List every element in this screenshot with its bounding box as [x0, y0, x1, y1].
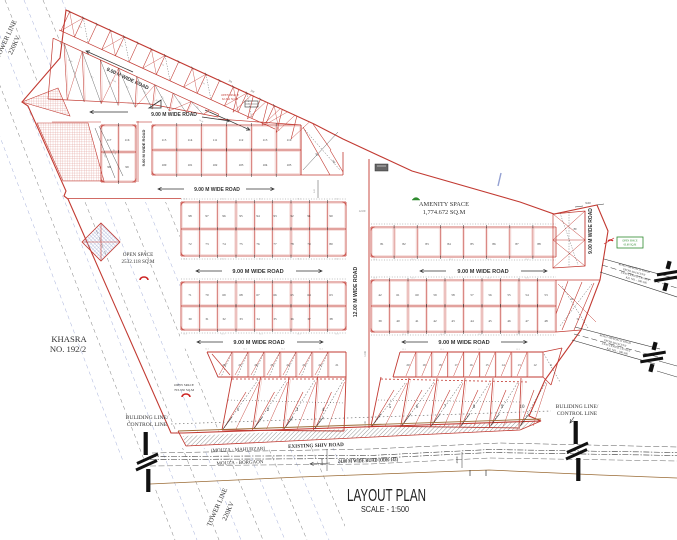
svg-text:117: 117 [107, 138, 112, 142]
svg-text:12.00: 12.00 [364, 350, 367, 357]
svg-text:47: 47 [525, 319, 529, 323]
svg-text:80: 80 [329, 242, 333, 246]
svg-text:12.1: 12.1 [205, 349, 208, 351]
svg-text:12.1: 12.1 [478, 334, 481, 336]
svg-text:12.1: 12.1 [487, 259, 490, 261]
svg-text:75: 75 [239, 242, 243, 246]
svg-text:OPEN SPACE: OPEN SPACE [174, 383, 194, 387]
svg-text:105: 105 [287, 163, 292, 167]
svg-text:30: 30 [188, 317, 192, 321]
svg-text:12.1: 12.1 [183, 259, 186, 261]
svg-text:111: 111 [213, 138, 218, 142]
svg-text:39: 39 [378, 319, 382, 323]
svg-text:76: 76 [256, 242, 260, 246]
svg-text:94: 94 [256, 214, 260, 218]
svg-text:113: 113 [263, 138, 268, 142]
svg-text:114: 114 [188, 138, 193, 142]
svg-text:32: 32 [222, 317, 226, 321]
svg-text:65: 65 [290, 293, 294, 297]
svg-text:9.00 M WIDE ROAD: 9.00 M WIDE ROAD [457, 269, 508, 275]
svg-text:96: 96 [222, 214, 226, 218]
svg-text:59: 59 [433, 293, 437, 297]
svg-text:63.68 SQ.M: 63.68 SQ.M [624, 244, 637, 247]
svg-text:83: 83 [425, 242, 429, 246]
svg-text:12.1: 12.1 [243, 349, 246, 351]
svg-text:38: 38 [329, 317, 333, 321]
svg-text:12.1: 12.1 [449, 278, 452, 280]
svg-text:26: 26 [254, 363, 258, 367]
svg-text:61: 61 [396, 293, 400, 297]
svg-text:12.1: 12.1 [259, 259, 262, 261]
svg-text:27: 27 [238, 363, 242, 367]
svg-text:72: 72 [188, 242, 192, 246]
svg-text:71: 71 [188, 293, 192, 297]
svg-text:SCALE - 1:500: SCALE - 1:500 [361, 505, 410, 514]
svg-text:95: 95 [239, 214, 243, 218]
svg-text:9.00 M WIDE ROAD: 9.00 M WIDE ROAD [232, 269, 283, 275]
svg-text:67: 67 [256, 293, 260, 297]
svg-text:12.1: 12.1 [297, 334, 300, 336]
svg-text:12.1: 12.1 [525, 278, 528, 280]
svg-text:78: 78 [290, 242, 294, 246]
svg-text:103: 103 [239, 163, 244, 167]
svg-text:57: 57 [470, 293, 474, 297]
svg-text:101: 101 [188, 163, 193, 167]
svg-text:12.1: 12.1 [487, 278, 490, 280]
svg-text:21: 21 [335, 363, 339, 367]
svg-text:CONTROL LINE: CONTROL LINE [127, 422, 168, 428]
svg-text:92: 92 [290, 214, 294, 218]
svg-text:64: 64 [307, 293, 311, 297]
svg-text:62.342 SQ.M: 62.342 SQ.M [222, 97, 239, 101]
svg-text:20: 20 [406, 363, 410, 367]
svg-text:13: 13 [517, 363, 521, 367]
svg-text:9.00 M WIDE ROAD: 9.00 M WIDE ROAD [588, 208, 594, 254]
svg-text:9.00 M WIDE ROAD: 9.00 M WIDE ROAD [194, 187, 240, 193]
svg-text:12.1: 12.1 [259, 199, 262, 201]
svg-text:84: 84 [447, 242, 451, 246]
svg-text:12.1: 12.1 [221, 334, 224, 336]
svg-text:703.350 SQ.M: 703.350 SQ.M [174, 388, 194, 392]
svg-text:12.1: 12.1 [297, 199, 300, 201]
svg-text:93: 93 [273, 214, 277, 218]
svg-text:12.00 M WIDE ROAD: 12.00 M WIDE ROAD [353, 267, 359, 318]
svg-text:12.1: 12.1 [411, 278, 414, 280]
svg-text:53: 53 [544, 293, 548, 297]
svg-text:74: 74 [222, 242, 226, 246]
svg-text:116: 116 [125, 138, 130, 142]
svg-text:48: 48 [544, 319, 548, 323]
svg-text:90: 90 [329, 214, 333, 218]
svg-text:25: 25 [270, 363, 274, 367]
svg-text:37: 37 [307, 317, 311, 321]
svg-text:12: 12 [533, 363, 537, 367]
svg-text:9.00 M WIDE ROAD: 9.00 M WIDE ROAD [233, 340, 284, 346]
svg-text:41: 41 [415, 319, 419, 323]
svg-text:86: 86 [492, 242, 496, 246]
svg-text:104: 104 [263, 163, 268, 167]
svg-text:100: 100 [162, 163, 167, 167]
svg-text:12.1: 12.1 [281, 349, 284, 351]
svg-text:46: 46 [507, 319, 511, 323]
svg-text:66: 66 [273, 293, 277, 297]
svg-text:16: 16 [469, 363, 473, 367]
svg-text:10: 10 [520, 405, 526, 410]
svg-text:17: 17 [454, 363, 458, 367]
svg-text:79: 79 [307, 242, 311, 246]
svg-text:68: 68 [239, 293, 243, 297]
svg-text:12.1: 12.1 [478, 349, 481, 351]
svg-text:OPEN SPACE: OPEN SPACE [622, 240, 638, 243]
svg-text:12.1: 12.1 [297, 259, 300, 261]
svg-text:82: 82 [402, 242, 406, 246]
svg-text:12.1: 12.1 [440, 349, 443, 351]
svg-text:42: 42 [378, 293, 382, 297]
svg-text:58: 58 [451, 293, 455, 297]
svg-text:69: 69 [222, 293, 226, 297]
svg-text:15: 15 [485, 363, 489, 367]
svg-text:28.00: 28.00 [455, 456, 459, 463]
svg-text:54: 54 [525, 293, 529, 297]
svg-text:110: 110 [287, 138, 292, 142]
svg-text:36: 36 [290, 317, 294, 321]
svg-text:24: 24 [286, 363, 290, 367]
svg-text:12.00: 12.00 [359, 209, 366, 213]
svg-text:18: 18 [438, 363, 442, 367]
svg-text:91: 91 [307, 214, 311, 218]
svg-text:77: 77 [273, 242, 277, 246]
svg-text:115: 115 [162, 138, 167, 142]
svg-text:98: 98 [188, 214, 192, 218]
svg-text:34: 34 [256, 317, 260, 321]
svg-text:BULIDING LINE/: BULIDING LINE/ [126, 415, 169, 421]
svg-text:102: 102 [213, 163, 218, 167]
svg-text:12.1: 12.1 [402, 349, 405, 351]
svg-text:112: 112 [239, 138, 244, 142]
svg-text:44: 44 [470, 319, 474, 323]
svg-text:OPEN SPACE: OPEN SPACE [123, 252, 154, 258]
svg-text:60: 60 [415, 293, 419, 297]
svg-text:2532.118 SQ.M: 2532.118 SQ.M [121, 259, 154, 265]
svg-text:9.00: 9.00 [585, 201, 591, 205]
svg-text:BULIDING LINE/: BULIDING LINE/ [556, 404, 599, 410]
svg-text:AMENITY SPACE: AMENITY SPACE [419, 201, 469, 208]
svg-text:22: 22 [318, 363, 322, 367]
svg-text:CONTROL LINE: CONTROL LINE [557, 411, 598, 417]
svg-text:85: 85 [470, 242, 474, 246]
svg-text:87: 87 [515, 242, 519, 246]
svg-text:55: 55 [507, 293, 511, 297]
svg-text:33: 33 [239, 317, 243, 321]
svg-text:43: 43 [451, 319, 455, 323]
svg-text:35: 35 [273, 317, 277, 321]
svg-text:12.00: 12.00 [364, 420, 367, 427]
svg-text:73: 73 [205, 242, 209, 246]
svg-text:63: 63 [329, 293, 333, 297]
svg-text:12.1: 12.1 [319, 349, 322, 351]
svg-text:12.1: 12.1 [335, 199, 338, 201]
svg-text:19: 19 [422, 363, 426, 367]
svg-text:88: 88 [537, 242, 541, 246]
svg-text:9.00 M WIDE ROAD: 9.00 M WIDE ROAD [141, 130, 146, 167]
svg-text:9.00 M WIDE ROAD: 9.00 M WIDE ROAD [438, 340, 489, 346]
svg-text:LAYOUT PLAN: LAYOUT PLAN [347, 485, 426, 505]
svg-text:12.1: 12.1 [516, 349, 519, 351]
svg-text:40: 40 [396, 319, 400, 323]
svg-text:12.1: 12.1 [183, 199, 186, 201]
svg-text:1,774.672 SQ.M: 1,774.672 SQ.M [423, 209, 466, 216]
svg-text:12.1: 12.1 [221, 199, 224, 201]
svg-text:42: 42 [433, 319, 437, 323]
svg-text:12.1: 12.1 [183, 334, 186, 336]
svg-text:KHASRA: KHASRA [51, 334, 87, 344]
svg-text:14: 14 [501, 363, 505, 367]
svg-text:56: 56 [488, 293, 492, 297]
svg-text:NO. 192/2: NO. 192/2 [50, 344, 86, 354]
svg-text:99: 99 [125, 165, 129, 169]
svg-text:12.1: 12.1 [221, 259, 224, 261]
svg-text:23: 23 [302, 363, 306, 367]
svg-text:12.1: 12.1 [335, 259, 338, 261]
svg-text:45: 45 [488, 319, 492, 323]
svg-text:70: 70 [205, 293, 209, 297]
svg-text:97: 97 [205, 214, 209, 218]
svg-text:12.1: 12.1 [335, 334, 338, 336]
svg-text:9.00 M WIDE ROAD: 9.00 M WIDE ROAD [151, 112, 197, 118]
svg-text:81: 81 [380, 242, 384, 246]
svg-text:12.1: 12.1 [373, 278, 376, 280]
svg-text:12.1: 12.1 [259, 334, 262, 336]
svg-text:24.00: 24.00 [320, 458, 324, 465]
svg-text:31: 31 [205, 317, 209, 321]
